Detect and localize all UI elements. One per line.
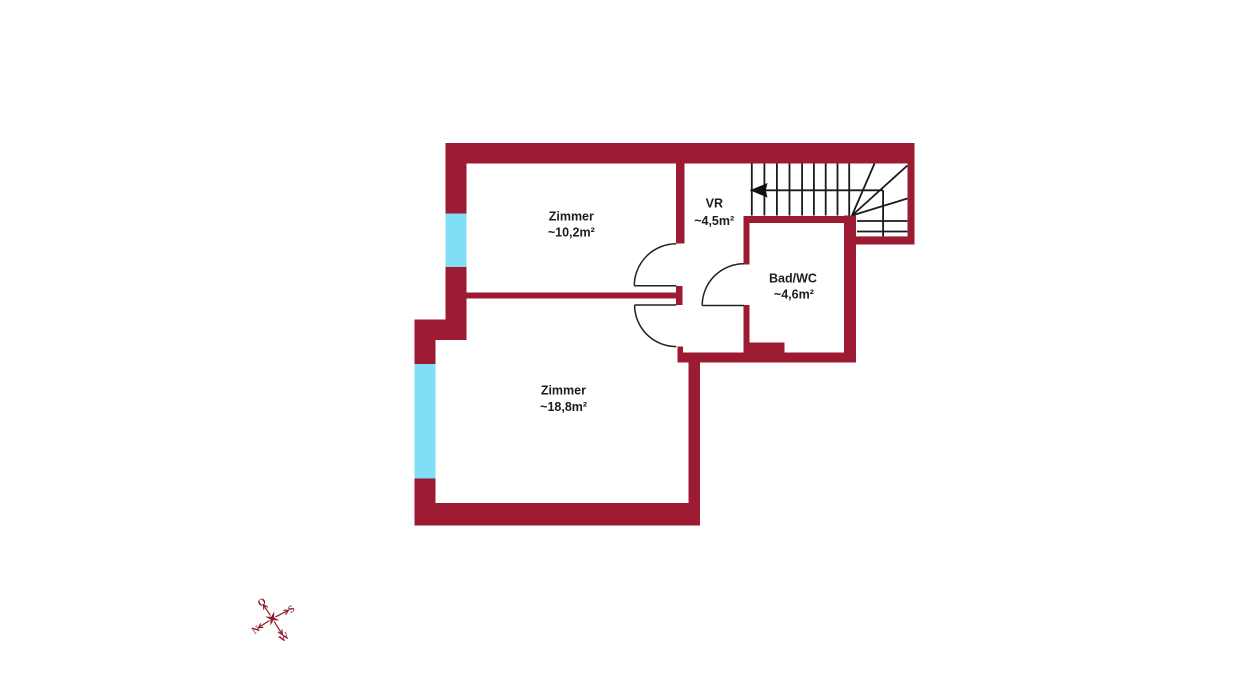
svg-text:VR: VR (706, 197, 723, 211)
svg-text:Zimmer: Zimmer (541, 384, 586, 398)
svg-text:~4,5m²: ~4,5m² (694, 214, 734, 228)
svg-text:~18,8m²: ~18,8m² (540, 400, 587, 414)
svg-text:Zimmer: Zimmer (549, 210, 594, 224)
svg-text:Bad/WC: Bad/WC (769, 272, 817, 286)
svg-text:~4,6m²: ~4,6m² (774, 288, 814, 302)
svg-text:~10,2m²: ~10,2m² (548, 226, 595, 240)
